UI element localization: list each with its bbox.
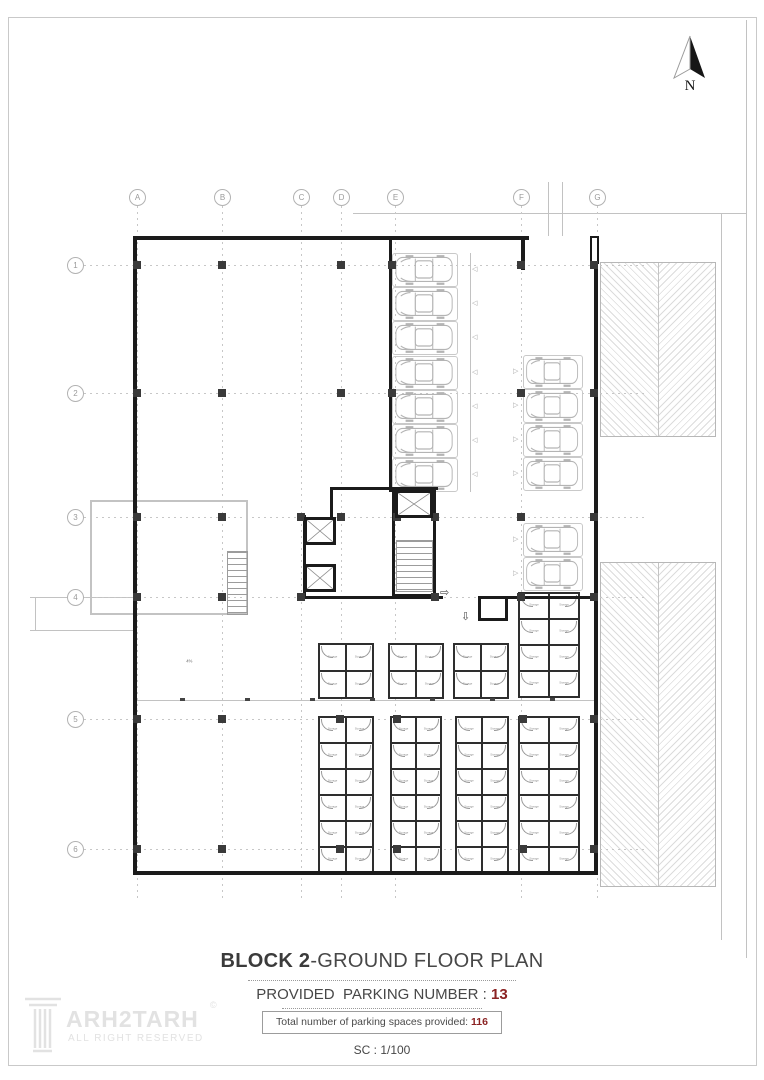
structural-column	[590, 261, 598, 269]
storage-room-label: Storage	[398, 806, 408, 809]
grid-line-vertical	[301, 206, 302, 900]
storage-room-label: Storage	[423, 754, 433, 757]
grid-row-label: 5	[67, 711, 84, 728]
storage-room: Storage	[415, 670, 444, 699]
storage-room: Storage	[318, 794, 347, 822]
storage-room-label: Storage	[354, 728, 365, 731]
storage-room-label: Storage	[489, 655, 500, 658]
storage-room-label: Storage	[354, 682, 365, 685]
staircase	[227, 551, 248, 615]
storage-room-label: Storage	[528, 754, 541, 757]
storage-room: Storage	[518, 670, 550, 698]
storage-room-label: Storage	[398, 728, 408, 731]
storage-room: Storage	[548, 768, 580, 796]
wall	[303, 596, 443, 599]
corridor-column-tick	[490, 698, 495, 701]
corridor-column-tick	[430, 698, 435, 701]
storage-room: Storage	[518, 644, 550, 672]
storage-room-label: Storage	[327, 780, 338, 783]
structural-column	[337, 261, 345, 269]
storage-room-label: Storage	[398, 858, 408, 861]
storage-room-label: Storage	[558, 780, 571, 783]
storage-room-label: Storage	[327, 655, 338, 658]
storage-room-label: Storage	[327, 832, 338, 835]
floor-plan: ABCDEFG123456◁◁◁◁◁◁◁▷▷▷▷▷▷StorageStorage…	[0, 0, 764, 1080]
storage-room-label: Storage	[423, 806, 433, 809]
storage-room-label: Storage	[528, 806, 541, 809]
subtitle-underline	[282, 1007, 482, 1009]
structural-column	[388, 261, 396, 269]
storage-room-label: Storage	[398, 754, 408, 757]
grid-row-label: 3	[67, 509, 84, 526]
site-line	[721, 213, 722, 940]
storage-room: Storage	[415, 768, 442, 796]
storage-room-label: Storage	[354, 655, 365, 658]
storage-room-label: Storage	[424, 655, 435, 658]
storage-room-label: Storage	[327, 728, 338, 731]
slope-marker: 4%	[186, 660, 192, 664]
grid-column-label: F	[513, 189, 530, 206]
storage-room: Storage	[453, 670, 482, 699]
wall-stub	[590, 236, 599, 264]
structural-column	[133, 389, 141, 397]
storage-room-label: Storage	[558, 604, 571, 607]
wall	[389, 236, 392, 492]
storage-room: Storage	[390, 794, 417, 822]
parking-space	[392, 253, 458, 287]
storage-room: Storage	[345, 846, 374, 874]
parking-chevron-icon: ▷	[513, 470, 518, 477]
plan-title-block-name: BLOCK 2	[220, 950, 310, 972]
storage-room-label: Storage	[489, 682, 500, 685]
storage-room: Storage	[455, 794, 483, 822]
storage-room-label: Storage	[558, 754, 571, 757]
storage-room-label: Storage	[327, 858, 338, 861]
grid-row-label: 6	[67, 841, 84, 858]
storage-room: Storage	[415, 742, 442, 770]
site-line	[470, 253, 471, 492]
storage-room-label: Storage	[558, 682, 571, 685]
corridor-column-tick	[550, 698, 555, 701]
wall	[594, 262, 598, 875]
structural-column	[517, 261, 525, 269]
storage-room-label: Storage	[354, 858, 365, 861]
storage-room: Storage	[481, 742, 509, 770]
storage-room: Storage	[390, 768, 417, 796]
provided-parking-value: 13	[491, 986, 508, 1003]
storage-room-label: Storage	[558, 858, 571, 861]
parking-space	[523, 355, 583, 389]
storage-room: Storage	[415, 846, 442, 874]
storage-room: Storage	[318, 768, 347, 796]
exit-arrow-icon: ⇩	[461, 610, 470, 623]
storage-room-label: Storage	[354, 832, 365, 835]
parking-chevron-icon: ◁	[472, 334, 477, 341]
corridor-column-tick	[310, 698, 315, 701]
storage-room-label: Storage	[528, 858, 541, 861]
storage-room: Storage	[548, 716, 580, 744]
storage-room: Storage	[518, 742, 550, 770]
storage-room: Storage	[481, 768, 509, 796]
storage-room-label: Storage	[490, 832, 501, 835]
storage-room: Storage	[518, 618, 550, 646]
storage-room-label: Storage	[327, 754, 338, 757]
storage-room-label: Storage	[464, 858, 475, 861]
grid-row-label: 4	[67, 589, 84, 606]
storage-room-label: Storage	[462, 655, 473, 658]
structural-column	[218, 715, 226, 723]
structural-column	[133, 845, 141, 853]
structural-column	[133, 715, 141, 723]
storage-room: Storage	[548, 670, 580, 698]
site-line	[35, 597, 36, 630]
parking-chevron-icon: ◁	[472, 403, 477, 410]
wall	[133, 236, 529, 240]
structural-column	[133, 593, 141, 601]
storage-room: Storage	[318, 670, 347, 699]
wall	[433, 490, 436, 597]
storage-room-label: Storage	[558, 630, 571, 633]
storage-room: Storage	[518, 820, 550, 848]
wall	[133, 236, 137, 875]
storage-room-label: Storage	[354, 806, 365, 809]
storage-room-label: Storage	[558, 656, 571, 659]
storage-room-label: Storage	[424, 682, 435, 685]
grid-column-label: C	[293, 189, 310, 206]
structural-column	[590, 593, 598, 601]
parking-space	[392, 424, 458, 458]
plan-title-rest: -GROUND FLOOR PLAN	[310, 950, 543, 972]
storage-room-label: Storage	[490, 858, 501, 861]
storage-room: Storage	[415, 820, 442, 848]
logo-brand-text: ARH2TARH	[66, 1006, 199, 1033]
storage-room: Storage	[480, 643, 509, 672]
storage-room-label: Storage	[423, 728, 433, 731]
structural-column	[590, 715, 598, 723]
structural-column	[336, 845, 344, 853]
structural-column	[133, 513, 141, 521]
storage-room: Storage	[455, 820, 483, 848]
parking-space	[392, 356, 458, 390]
structural-column	[590, 845, 598, 853]
storage-room: Storage	[390, 742, 417, 770]
plan-title: BLOCK 2-GROUND FLOOR PLAN	[0, 950, 764, 973]
storage-room-label: Storage	[423, 832, 433, 835]
parking-chevron-icon: ▷	[513, 570, 518, 577]
storage-room: Storage	[415, 716, 442, 744]
title-underline	[248, 979, 516, 981]
parking-space	[523, 523, 583, 557]
storage-room: Storage	[518, 768, 550, 796]
site-line	[548, 182, 549, 236]
parking-chevron-icon: ▷	[513, 436, 518, 443]
grid-column-label: D	[333, 189, 350, 206]
staircase	[396, 540, 433, 592]
storage-room: Storage	[548, 644, 580, 672]
structural-column	[519, 845, 527, 853]
storage-room: Storage	[481, 820, 509, 848]
wall	[478, 596, 597, 599]
structural-column	[218, 389, 226, 397]
storage-room-label: Storage	[398, 780, 408, 783]
storage-room: Storage	[518, 794, 550, 822]
storage-room: Storage	[345, 820, 374, 848]
grid-column-label: G	[589, 189, 606, 206]
structural-column	[388, 389, 396, 397]
logo-tagline: ALL RIGHT RESERVED	[68, 1033, 204, 1044]
parking-space	[392, 390, 458, 424]
storage-room-label: Storage	[528, 728, 541, 731]
drawing-sheet: N ABCDEFG123456◁◁◁◁◁◁◁▷▷▷▷▷▷StorageStora…	[0, 0, 764, 1080]
elevator-shaft	[304, 564, 336, 592]
structural-column	[218, 261, 226, 269]
grid-column-label: E	[387, 189, 404, 206]
parking-space	[523, 557, 583, 591]
storage-room-label: Storage	[354, 780, 365, 783]
parking-chevron-icon: ◁	[472, 369, 477, 376]
storage-room-label: Storage	[462, 682, 473, 685]
storage-room-label: Storage	[558, 728, 571, 731]
structural-column	[517, 593, 525, 601]
storage-room-label: Storage	[464, 728, 475, 731]
total-parking-label: Total number of parking spaces provided:	[276, 1016, 471, 1028]
storage-room: Storage	[455, 716, 483, 744]
structural-column	[218, 845, 226, 853]
storage-room: Storage	[455, 768, 483, 796]
storage-room: Storage	[548, 846, 580, 874]
site-line	[746, 20, 747, 958]
storage-room-label: Storage	[423, 858, 433, 861]
storage-room: Storage	[345, 643, 374, 672]
wall	[505, 598, 508, 620]
parking-chevron-icon: ▷	[513, 536, 518, 543]
storage-room-label: Storage	[397, 682, 408, 685]
structural-column	[393, 845, 401, 853]
structural-column	[337, 513, 345, 521]
grid-line-horizontal	[84, 265, 648, 266]
structural-column	[431, 593, 439, 601]
storage-room: Storage	[453, 643, 482, 672]
storage-room-label: Storage	[528, 780, 541, 783]
grid-column-label: A	[129, 189, 146, 206]
provided-parking-label: PROVIDED PARKING NUMBER :	[256, 986, 491, 1003]
wall	[478, 598, 481, 620]
grid-row-label: 2	[67, 385, 84, 402]
grid-column-label: B	[214, 189, 231, 206]
parking-chevron-icon: ▷	[513, 368, 518, 375]
parking-chevron-icon: ◁	[472, 266, 477, 273]
wall	[330, 487, 333, 517]
adjacent-building-hatch	[600, 262, 716, 437]
storage-room: Storage	[548, 618, 580, 646]
storage-room-label: Storage	[558, 832, 571, 835]
storage-room-label: Storage	[490, 780, 501, 783]
storage-room: Storage	[481, 794, 509, 822]
storage-room: Storage	[345, 716, 374, 744]
total-parking-value: 116	[471, 1016, 488, 1028]
structural-column	[517, 389, 525, 397]
structural-column	[337, 389, 345, 397]
storage-room: Storage	[455, 846, 483, 874]
structural-column	[590, 513, 598, 521]
parking-chevron-icon: ▷	[513, 402, 518, 409]
parking-space	[392, 321, 458, 355]
storage-room: Storage	[318, 643, 347, 672]
column-icon	[22, 996, 64, 1056]
storage-room: Storage	[548, 794, 580, 822]
storage-room-label: Storage	[528, 656, 541, 659]
storage-room-label: Storage	[558, 806, 571, 809]
storage-room-label: Storage	[327, 682, 338, 685]
total-parking-box: Total number of parking spaces provided:…	[262, 1011, 502, 1034]
storage-room-label: Storage	[464, 780, 475, 783]
storage-room: Storage	[388, 643, 417, 672]
parking-chevron-icon: ◁	[472, 437, 477, 444]
storage-room-label: Storage	[528, 630, 541, 633]
structural-column	[517, 513, 525, 521]
storage-room: Storage	[318, 820, 347, 848]
storage-room: Storage	[548, 742, 580, 770]
elevator-shaft	[304, 517, 336, 545]
structural-column	[590, 389, 598, 397]
storage-room-label: Storage	[398, 832, 408, 835]
storage-room-label: Storage	[464, 832, 475, 835]
site-line	[353, 213, 746, 214]
storage-room: Storage	[548, 820, 580, 848]
site-line	[30, 630, 133, 631]
logo: ARH2TARH © ALL RIGHT RESERVED	[22, 996, 252, 1062]
structural-column	[218, 513, 226, 521]
parking-space	[523, 457, 583, 491]
corridor-column-tick	[370, 698, 375, 701]
storage-room-label: Storage	[490, 754, 501, 757]
site-line	[135, 700, 594, 701]
wall	[133, 871, 598, 875]
storage-room: Storage	[345, 670, 374, 699]
storage-room: Storage	[390, 820, 417, 848]
grid-row-label: 1	[67, 257, 84, 274]
storage-room: Storage	[481, 716, 509, 744]
storage-room: Storage	[481, 846, 509, 874]
exit-arrow-icon: ⇨	[440, 586, 449, 599]
site-line	[562, 182, 563, 236]
storage-room-label: Storage	[464, 754, 475, 757]
storage-room-label: Storage	[528, 604, 541, 607]
storage-room: Storage	[480, 670, 509, 699]
structural-column	[218, 593, 226, 601]
corridor-column-tick	[180, 698, 185, 701]
storage-room: Storage	[415, 794, 442, 822]
wall	[478, 618, 508, 621]
parking-chevron-icon: ◁	[472, 300, 477, 307]
structural-column	[393, 715, 401, 723]
storage-room: Storage	[345, 768, 374, 796]
structural-column	[519, 715, 527, 723]
parking-space	[392, 287, 458, 321]
corridor-column-tick	[245, 698, 250, 701]
storage-room: Storage	[345, 794, 374, 822]
storage-room-label: Storage	[528, 832, 541, 835]
adjacent-building-hatch	[600, 562, 716, 887]
parking-chevron-icon: ◁	[472, 471, 477, 478]
structural-column	[133, 261, 141, 269]
storage-room-label: Storage	[327, 806, 338, 809]
storage-room: Storage	[345, 742, 374, 770]
parking-space	[523, 423, 583, 457]
storage-room: Storage	[415, 643, 444, 672]
structural-column	[297, 593, 305, 601]
structural-column	[336, 715, 344, 723]
elevator-shaft	[395, 490, 433, 518]
storage-room-label: Storage	[528, 682, 541, 685]
storage-room-label: Storage	[490, 728, 501, 731]
storage-room-label: Storage	[423, 780, 433, 783]
storage-room-label: Storage	[354, 754, 365, 757]
storage-room: Storage	[318, 742, 347, 770]
storage-room-label: Storage	[397, 655, 408, 658]
logo-copyright: ©	[210, 1000, 217, 1010]
storage-room: Storage	[388, 670, 417, 699]
storage-room-label: Storage	[464, 806, 475, 809]
storage-room-label: Storage	[490, 806, 501, 809]
parking-space	[523, 389, 583, 423]
storage-room: Storage	[455, 742, 483, 770]
